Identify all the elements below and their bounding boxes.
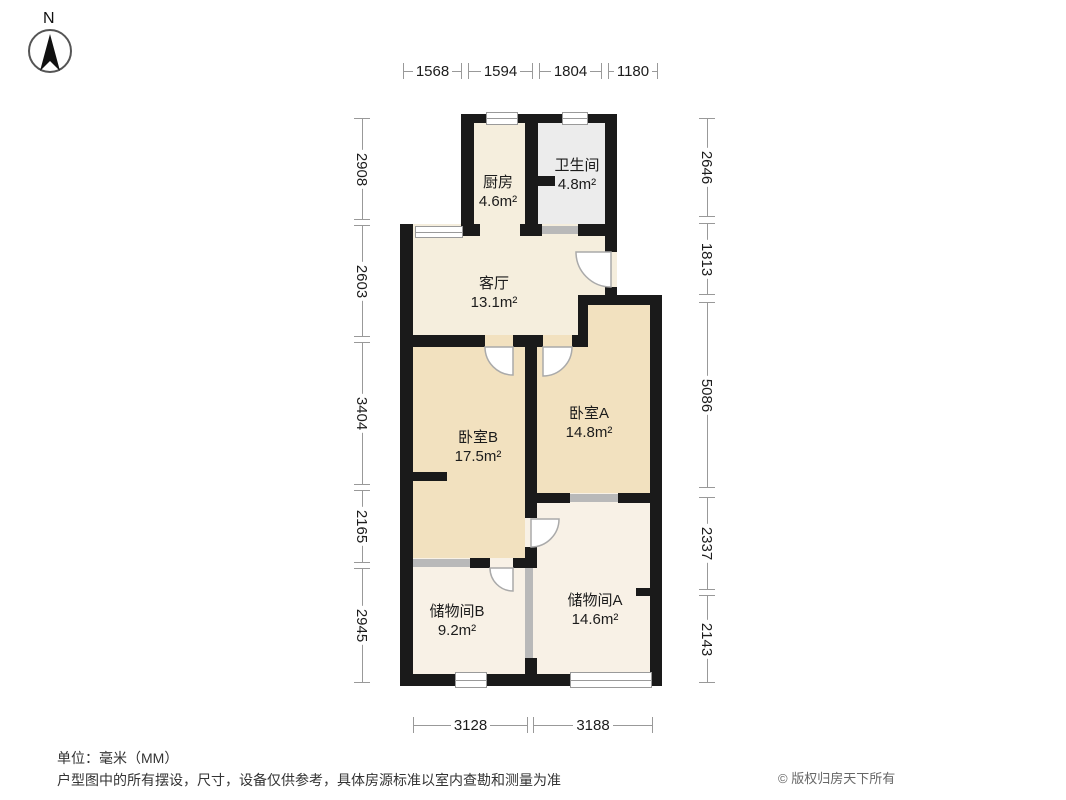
room-label-living-room: 客厅 13.1m² xyxy=(471,274,518,312)
room-name: 卧室A xyxy=(566,404,613,423)
wall xyxy=(470,558,490,568)
room-label-kitchen: 厨房 4.6m² xyxy=(479,173,517,211)
wall-stub xyxy=(636,588,650,596)
window-storage-a xyxy=(570,672,652,688)
dim-value: 1568 xyxy=(413,63,452,80)
wall-right-exterior xyxy=(650,295,662,686)
window-storage-b xyxy=(455,672,487,688)
footer-unit-note: 单位：毫米（MM） xyxy=(57,748,178,768)
room-area: 14.8m² xyxy=(566,423,613,442)
dim-bottom-2: 3188 xyxy=(533,717,653,733)
window-living-room xyxy=(415,226,463,238)
dim-left-5: 2945 xyxy=(354,568,370,683)
dim-right-2: 1813 xyxy=(699,223,715,295)
room-name: 卫生间 xyxy=(554,156,599,175)
room-label-storage-a: 储物间A 14.6m² xyxy=(567,591,622,629)
dim-value: 1180 xyxy=(614,63,652,80)
room-name: 客厅 xyxy=(471,274,518,293)
dim-right-5: 2143 xyxy=(699,595,715,683)
dim-right-3: 5086 xyxy=(699,302,715,488)
room-area: 4.6m² xyxy=(479,192,517,211)
dim-value: 1813 xyxy=(699,239,716,278)
wall-bedroom-divider xyxy=(525,335,537,518)
dim-value: 2165 xyxy=(354,507,371,546)
dim-right-1: 2646 xyxy=(699,118,715,217)
window-bathroom xyxy=(562,112,588,125)
wall xyxy=(520,224,542,236)
dim-left-4: 2165 xyxy=(354,490,370,563)
wall xyxy=(618,493,662,503)
dim-left-3: 3404 xyxy=(354,342,370,485)
room-label-bathroom: 卫生间 4.8m² xyxy=(554,156,599,194)
bathroom-sliding-door xyxy=(542,226,578,234)
wall xyxy=(463,224,480,236)
dim-value: 2908 xyxy=(354,149,371,188)
room-area: 14.6m² xyxy=(567,610,622,629)
floorplan-canvas: N xyxy=(0,0,1066,800)
wall xyxy=(525,114,538,230)
room-area: 13.1m² xyxy=(471,293,518,312)
room-label-bedroom-a: 卧室A 14.8m² xyxy=(566,404,613,442)
compass-north-label: N xyxy=(43,10,55,28)
dim-top-2: 1594 xyxy=(468,63,533,79)
dim-value: 2143 xyxy=(699,619,716,658)
dim-bottom-1: 3128 xyxy=(413,717,528,733)
wall xyxy=(400,335,485,347)
dim-left-2: 2603 xyxy=(354,225,370,337)
footer-copyright: © 版权归房天下所有 xyxy=(778,768,895,787)
dim-value: 2603 xyxy=(354,261,371,300)
dim-value: 5086 xyxy=(699,375,716,414)
room-area: 17.5m² xyxy=(455,447,502,466)
wall xyxy=(578,224,617,236)
wall xyxy=(513,558,537,568)
dim-value: 2945 xyxy=(354,606,371,645)
wall xyxy=(461,114,617,123)
window-kitchen xyxy=(486,112,518,125)
wall-stub xyxy=(538,176,555,186)
dim-value: 3188 xyxy=(573,717,612,734)
room-area: 9.2m² xyxy=(429,621,484,640)
partition-storage-divider xyxy=(525,568,533,658)
partition-bedroom-a xyxy=(570,494,618,502)
wall xyxy=(461,114,474,230)
dim-value: 2337 xyxy=(699,524,716,563)
dim-left-1: 2908 xyxy=(354,118,370,220)
wall-left-exterior xyxy=(400,224,413,686)
room-name: 储物间B xyxy=(429,602,484,621)
dim-value: 3404 xyxy=(354,394,371,433)
room-label-storage-b: 储物间B 9.2m² xyxy=(429,602,484,640)
room-name: 卧室B xyxy=(455,428,502,447)
dim-value: 1804 xyxy=(551,63,590,80)
room-name: 储物间A xyxy=(567,591,622,610)
dim-top-3: 1804 xyxy=(539,63,602,79)
partition-bedroom-b xyxy=(413,559,470,567)
dim-value: 1594 xyxy=(481,63,520,80)
wall-stub xyxy=(413,472,447,481)
dim-top-1: 1568 xyxy=(403,63,462,79)
dim-value: 2646 xyxy=(699,148,716,187)
footer-disclaimer: 户型图中的所有摆设，尺寸，设备仅供参考，具体房源标准以室内查勘和测量为准 xyxy=(57,770,561,790)
wall xyxy=(525,493,570,503)
room-area: 4.8m² xyxy=(554,175,599,194)
dim-top-4: 1180 xyxy=(608,63,658,79)
room-name: 厨房 xyxy=(479,173,517,192)
room-label-bedroom-b: 卧室B 17.5m² xyxy=(455,428,502,466)
dim-right-4: 2337 xyxy=(699,497,715,590)
compass-circle xyxy=(28,29,72,73)
dim-value: 3128 xyxy=(451,717,490,734)
